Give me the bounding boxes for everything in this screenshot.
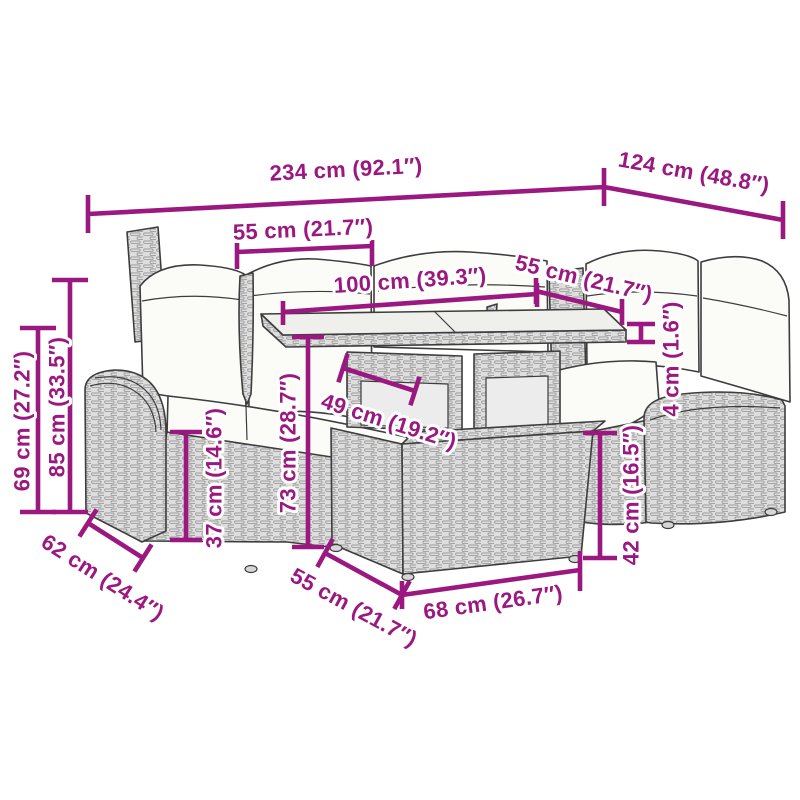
left-armrest xyxy=(85,370,166,542)
dimension-diagram: 234 cm (92.1″) 124 cm (48.8″) 55 cm (21.… xyxy=(0,0,800,800)
foot xyxy=(662,522,674,529)
table-pedestal-right-panel xyxy=(486,376,548,429)
dim-label-overall-height: 85 cm (33.5″) xyxy=(45,337,70,477)
foot xyxy=(330,545,342,552)
dim-label-armrest-height: 69 cm (27.2″) xyxy=(10,351,35,491)
dim-label-overall-width: 234 cm (92.1″) xyxy=(269,153,423,186)
dim-label-right-section-depth: 124 cm (48.8″) xyxy=(616,147,771,198)
ottoman-side-left xyxy=(331,428,403,574)
ottoman-front xyxy=(402,431,593,574)
dim-label-left-seat-width: 55 cm (21.7″) xyxy=(232,214,373,245)
foot xyxy=(245,566,257,573)
dim-label-ottoman-width: 68 cm (26.7″) xyxy=(422,580,565,624)
foot xyxy=(402,574,414,581)
dim-label-ottoman-height: 42 cm (16.5″) xyxy=(619,425,644,565)
dim-label-seat-height: 37 cm (14.6″) xyxy=(202,408,227,548)
ottoman xyxy=(331,421,605,574)
dim-label-seat-depth: 62 cm (24.4″) xyxy=(37,529,169,626)
diagram-canvas: 234 cm (92.1″) 124 cm (48.8″) 55 cm (21.… xyxy=(0,0,800,800)
dim-label-tabletop-thickness: 4 cm (1.6″) xyxy=(659,301,684,416)
foot xyxy=(765,509,777,516)
tabletop-glass xyxy=(261,309,626,335)
dim-label-table-height: 73 cm (28.7″) xyxy=(276,373,301,513)
back-pillow-right-2 xyxy=(701,257,790,402)
